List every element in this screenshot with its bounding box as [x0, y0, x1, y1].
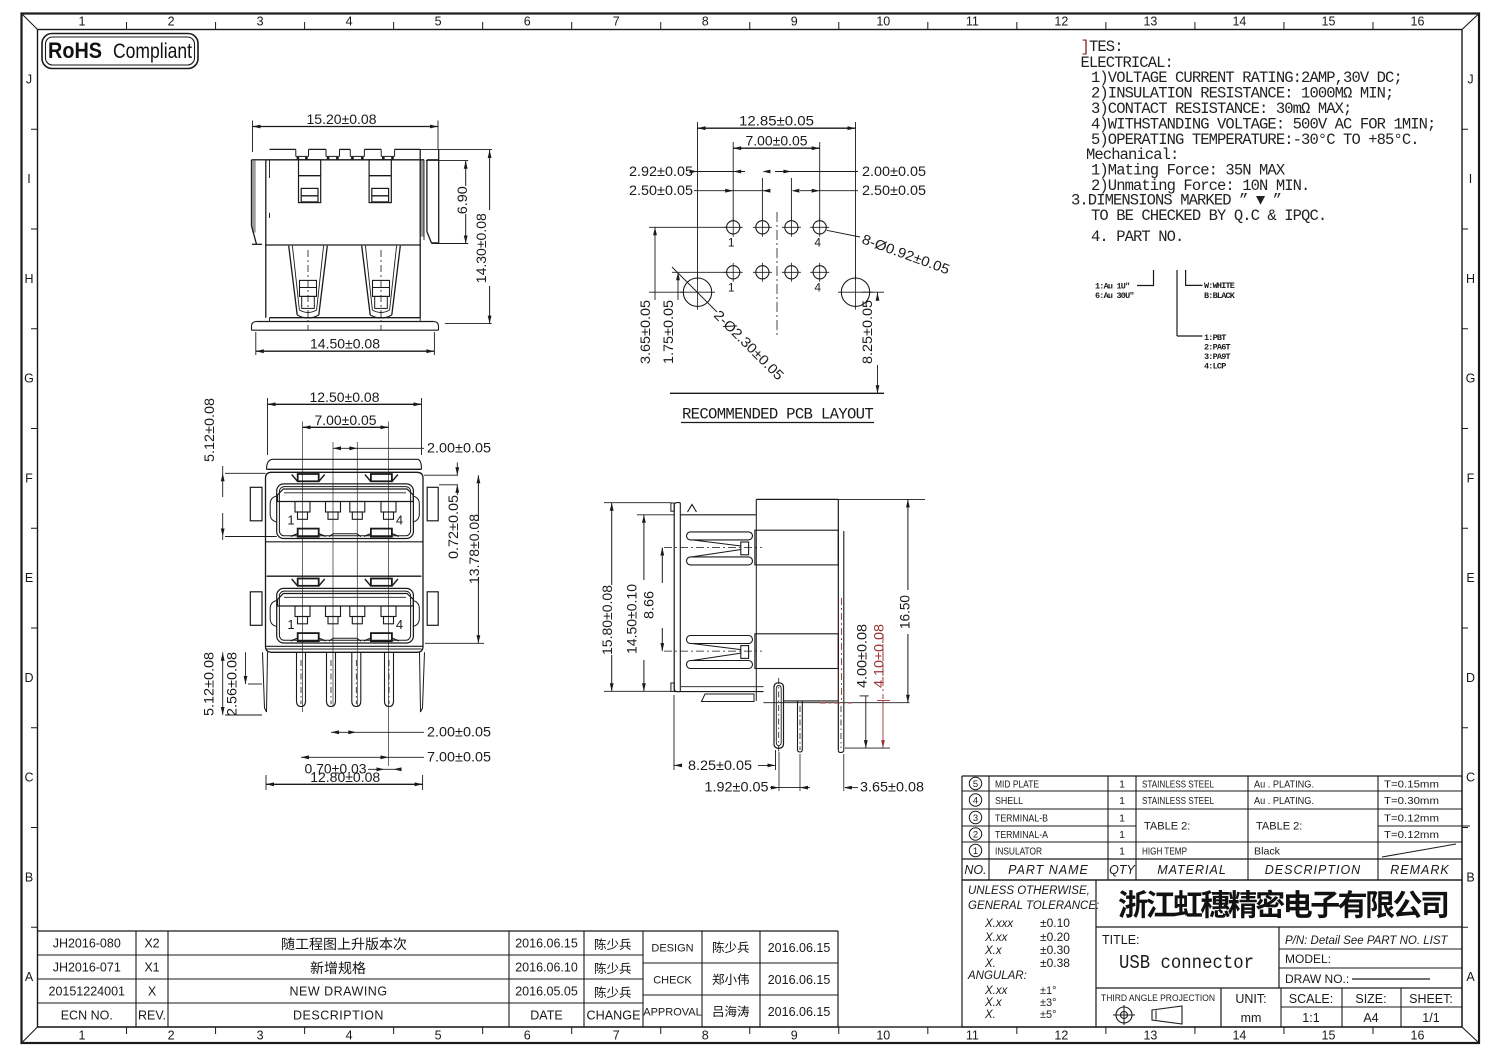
svg-text:SHELL: SHELL [995, 795, 1023, 807]
svg-text:1: 1 [79, 1029, 86, 1043]
svg-text:5: 5 [973, 779, 978, 790]
svg-text:8.25±0.05: 8.25±0.05 [688, 757, 752, 773]
svg-text:JH2016-080: JH2016-080 [53, 937, 121, 951]
svg-text:C: C [1466, 771, 1475, 785]
svg-text:12.80±0.08: 12.80±0.08 [310, 769, 380, 785]
svg-text:4.10±0.08: 4.10±0.08 [871, 624, 887, 688]
svg-text:NO.: NO. [964, 863, 986, 877]
svg-text:T=0.12mm: T=0.12mm [1384, 813, 1439, 825]
svg-text:W:WHITE: W:WHITE [1204, 281, 1235, 291]
svg-text:X: X [148, 985, 157, 999]
svg-text:±5°: ±5° [1040, 1009, 1057, 1021]
svg-text:2: 2 [973, 830, 978, 841]
svg-text:ECN NO.: ECN NO. [61, 1009, 113, 1023]
svg-text:MID PLATE: MID PLATE [995, 779, 1039, 791]
svg-text:12.85±0.05: 12.85±0.05 [739, 113, 814, 129]
svg-text:4.00±0.08: 4.00±0.08 [854, 624, 870, 688]
svg-text:X.: X. [984, 1009, 996, 1021]
svg-text:14.50±0.10: 14.50±0.10 [624, 584, 640, 654]
svg-text:20151224001: 20151224001 [49, 985, 126, 999]
svg-text:7: 7 [613, 15, 620, 29]
svg-text:9: 9 [791, 15, 798, 29]
svg-text:12: 12 [1054, 15, 1068, 29]
svg-text:3: 3 [973, 813, 978, 824]
svg-text:16: 16 [1411, 1029, 1425, 1043]
svg-text:3.65±0.05: 3.65±0.05 [637, 300, 653, 364]
svg-text:8: 8 [702, 1029, 709, 1043]
svg-text:5.12±0.08: 5.12±0.08 [201, 652, 217, 716]
svg-text:3: 3 [257, 15, 264, 29]
svg-text:13: 13 [1143, 15, 1157, 29]
svg-text:4: 4 [346, 1029, 353, 1043]
svg-text:8: 8 [702, 15, 709, 29]
svg-text:3:PA9T: 3:PA9T [1204, 352, 1231, 362]
svg-text:4: 4 [396, 617, 403, 632]
svg-text:10: 10 [876, 1029, 890, 1043]
svg-text:4: 4 [973, 796, 978, 807]
svg-text:2.50±0.05: 2.50±0.05 [629, 182, 693, 198]
svg-text:SHEET:: SHEET: [1409, 992, 1453, 1006]
svg-text:T=0.12mm: T=0.12mm [1384, 829, 1439, 841]
svg-text:2:PA6T: 2:PA6T [1204, 343, 1231, 353]
svg-text:3: 3 [257, 1029, 264, 1043]
svg-text:±0.20: ±0.20 [1040, 930, 1070, 944]
svg-text:G: G [1466, 372, 1476, 386]
svg-text:TITLE:: TITLE: [1102, 933, 1140, 947]
svg-text:14: 14 [1232, 15, 1246, 29]
svg-text:2.92±0.05: 2.92±0.05 [629, 163, 693, 179]
svg-text:QTY: QTY [1109, 863, 1136, 877]
svg-text:DATE: DATE [530, 1009, 562, 1023]
svg-text:9: 9 [791, 1029, 798, 1043]
svg-text:I: I [27, 172, 30, 186]
svg-text:TERMINAL-A: TERMINAL-A [995, 829, 1048, 841]
svg-text:UNIT:: UNIT: [1235, 992, 1266, 1006]
svg-text:TABLE 2:: TABLE 2: [1144, 821, 1190, 833]
svg-text:4:LCP: 4:LCP [1204, 362, 1226, 372]
svg-text:Au . PLATING.: Au . PLATING. [1254, 795, 1314, 807]
svg-text:H: H [1466, 272, 1475, 286]
svg-text:4: 4 [814, 235, 821, 249]
svg-text:STAINLESS STEEL: STAINLESS STEEL [1142, 795, 1214, 807]
svg-text:PART NAME: PART NAME [1008, 863, 1089, 877]
svg-text:1:1: 1:1 [1302, 1011, 1319, 1025]
svg-text:T=0.30mm: T=0.30mm [1384, 795, 1439, 807]
svg-text:A4: A4 [1363, 1011, 1378, 1025]
svg-text:TERMINAL-B: TERMINAL-B [995, 813, 1048, 825]
svg-text:D: D [24, 671, 33, 685]
svg-text:5.12±0.08: 5.12±0.08 [201, 398, 217, 462]
svg-text:DESCRIPTION: DESCRIPTION [293, 1009, 384, 1023]
svg-text:F: F [1467, 471, 1475, 485]
svg-text:1: 1 [1119, 795, 1125, 807]
svg-text:1:PBT: 1:PBT [1204, 333, 1226, 343]
svg-text:4: 4 [396, 513, 403, 528]
svg-text:4: 4 [814, 280, 821, 294]
svg-text:DESCRIPTION: DESCRIPTION [1265, 863, 1361, 877]
svg-text:6: 6 [524, 15, 531, 29]
svg-text:X1: X1 [144, 961, 159, 975]
svg-text:J: J [1467, 72, 1473, 86]
svg-text:2.00±0.05: 2.00±0.05 [862, 163, 926, 179]
svg-text:P/N: Detail See PART NO. LIST: P/N: Detail See PART NO. LIST [1285, 935, 1449, 947]
svg-text:3.65±0.08: 3.65±0.08 [860, 779, 924, 795]
svg-text:14.50±0.08: 14.50±0.08 [310, 336, 380, 352]
svg-text:2016.06.15: 2016.06.15 [515, 937, 578, 951]
svg-text:1: 1 [1119, 813, 1125, 825]
svg-text:16: 16 [1411, 15, 1425, 29]
svg-text:1: 1 [1119, 829, 1125, 841]
svg-text:X.x: X.x [984, 945, 1003, 957]
svg-text:2016.06.15: 2016.06.15 [768, 1005, 831, 1019]
svg-text:14: 14 [1232, 1029, 1246, 1043]
svg-text:16.50: 16.50 [897, 595, 913, 629]
svg-text:1: 1 [287, 617, 294, 632]
svg-text:±1°: ±1° [1040, 985, 1057, 997]
svg-text:2.00±0.05: 2.00±0.05 [427, 724, 491, 740]
svg-text:B: B [25, 870, 33, 884]
svg-text:2: 2 [168, 1029, 175, 1043]
svg-text:1: 1 [79, 15, 86, 29]
svg-text:UNLESS OTHERWISE,: UNLESS OTHERWISE, [968, 885, 1090, 897]
svg-text:4. PART NO.: 4. PART NO. [1091, 228, 1183, 246]
svg-text:mm: mm [1241, 1011, 1262, 1025]
svg-text:REV.: REV. [138, 1009, 166, 1023]
svg-text:CHECK: CHECK [653, 975, 692, 987]
svg-text:GENERAL TOLERANCE:: GENERAL TOLERANCE: [968, 900, 1099, 912]
svg-text:5: 5 [435, 15, 442, 29]
svg-text:]: ] [1081, 38, 1089, 56]
svg-text:2016.05.05: 2016.05.05 [515, 985, 578, 999]
svg-text:INSULATOR: INSULATOR [995, 846, 1042, 858]
svg-text:5: 5 [435, 1029, 442, 1043]
svg-text:Compliant: Compliant [113, 40, 192, 63]
svg-text:X.xx: X.xx [984, 932, 1009, 944]
svg-text:E: E [25, 571, 33, 585]
svg-text:TES:: TES: [1089, 38, 1123, 56]
svg-text:RoHS: RoHS [48, 38, 102, 63]
svg-text:D: D [1466, 671, 1475, 685]
svg-text:2.50±0.05: 2.50±0.05 [862, 182, 926, 198]
svg-text:1: 1 [1119, 846, 1125, 858]
svg-text:USB connector: USB connector [1119, 952, 1254, 974]
svg-text:12.50±0.08: 12.50±0.08 [310, 389, 380, 405]
svg-text:10: 10 [876, 15, 890, 29]
svg-text:12: 12 [1054, 1029, 1068, 1043]
svg-text:B: B [1466, 870, 1474, 884]
svg-text:X.xxx: X.xxx [984, 918, 1014, 930]
svg-text:APPROVAL: APPROVAL [643, 1007, 702, 1019]
svg-text:Black: Black [1254, 846, 1281, 858]
svg-text:14.30±0.08: 14.30±0.08 [473, 213, 489, 283]
svg-text:X.: X. [984, 958, 996, 970]
svg-text:8.66: 8.66 [641, 591, 657, 619]
svg-text:NEW DRAWING: NEW DRAWING [289, 985, 387, 999]
svg-text:1:Au 1U″: 1:Au 1U″ [1095, 282, 1130, 292]
svg-text:X.xx: X.xx [984, 985, 1009, 997]
svg-text:±3°: ±3° [1040, 997, 1057, 1009]
svg-text:STAINLESS STEEL: STAINLESS STEEL [1142, 779, 1214, 791]
svg-text:13: 13 [1143, 1029, 1157, 1043]
svg-text:1: 1 [728, 280, 735, 294]
svg-text:1: 1 [1119, 779, 1125, 791]
svg-text:1/1: 1/1 [1422, 1011, 1439, 1025]
svg-text:DRAW NO.:: DRAW NO.: [1285, 972, 1349, 986]
svg-text:JH2016-071: JH2016-071 [53, 961, 121, 975]
svg-text:13.78±0.08: 13.78±0.08 [466, 514, 482, 584]
svg-text:15: 15 [1322, 1029, 1336, 1043]
svg-text:1: 1 [728, 235, 735, 249]
svg-text:2: 2 [168, 15, 175, 29]
svg-text:J: J [26, 72, 32, 86]
svg-text:X2: X2 [144, 937, 159, 951]
svg-text:Au . PLATING.: Au . PLATING. [1254, 779, 1314, 791]
svg-text:MATERIAL: MATERIAL [1157, 863, 1227, 877]
svg-text:SIZE:: SIZE: [1355, 992, 1386, 1006]
svg-text:T=0.15mm: T=0.15mm [1384, 779, 1439, 791]
svg-text:1.92±0.05: 1.92±0.05 [705, 779, 769, 795]
svg-text:11: 11 [966, 15, 979, 29]
svg-text:6: 6 [524, 1029, 531, 1043]
svg-text:7.00±0.05: 7.00±0.05 [427, 749, 491, 765]
svg-text:C: C [24, 771, 33, 785]
svg-text:4: 4 [346, 15, 353, 29]
svg-text:15.80±0.08: 15.80±0.08 [599, 585, 615, 655]
svg-text:8.25±0.05: 8.25±0.05 [859, 300, 875, 364]
svg-text:6:Au 30U″: 6:Au 30U″ [1095, 291, 1134, 301]
svg-text:MODEL:: MODEL: [1285, 952, 1331, 966]
svg-text:2016.06.10: 2016.06.10 [515, 961, 578, 975]
svg-text:G: G [24, 372, 34, 386]
svg-text:2016.06.15: 2016.06.15 [768, 941, 831, 955]
svg-text:2.56±0.08: 2.56±0.08 [224, 652, 240, 716]
svg-text:1.75±0.05: 1.75±0.05 [660, 300, 676, 364]
svg-text:7.00±0.05: 7.00±0.05 [315, 412, 377, 428]
svg-text:CHANGE: CHANGE [587, 1009, 641, 1023]
svg-text:DESIGN: DESIGN [651, 943, 693, 955]
svg-text:1: 1 [973, 846, 978, 857]
svg-text:A: A [25, 970, 34, 984]
svg-text:15.20±0.08: 15.20±0.08 [307, 111, 377, 127]
svg-text:TO BE CHECKED BY Q.C & IPQC.: TO BE CHECKED BY Q.C & IPQC. [1091, 207, 1326, 225]
svg-text:I: I [1469, 172, 1472, 186]
svg-text:0.72±0.05: 0.72±0.05 [445, 495, 461, 559]
svg-text:H: H [24, 272, 33, 286]
svg-text:E: E [1466, 571, 1474, 585]
svg-text:±0.38: ±0.38 [1040, 956, 1070, 970]
svg-text:RECOMMENDED PCB LAYOUT: RECOMMENDED PCB LAYOUT [682, 406, 873, 424]
svg-text:1: 1 [287, 513, 294, 528]
svg-text:11: 11 [966, 1029, 979, 1043]
svg-text:SCALE:: SCALE: [1289, 992, 1333, 1006]
svg-text:15: 15 [1322, 15, 1336, 29]
svg-text:F: F [25, 471, 33, 485]
svg-text:ANGULAR:: ANGULAR: [967, 970, 1027, 982]
svg-text:±0.10: ±0.10 [1040, 916, 1070, 930]
svg-text:2.00±0.05: 2.00±0.05 [427, 440, 491, 456]
svg-text:2016.06.15: 2016.06.15 [768, 973, 831, 987]
svg-text:TABLE 2:: TABLE 2: [1256, 821, 1302, 833]
svg-text:THIRD ANGLE PROJECTION: THIRD ANGLE PROJECTION [1101, 993, 1215, 1004]
svg-text:A: A [1466, 970, 1475, 984]
svg-text:B:BLACK: B:BLACK [1204, 291, 1236, 301]
svg-text:7: 7 [613, 1029, 620, 1043]
svg-text:7.00±0.05: 7.00±0.05 [746, 133, 808, 149]
svg-text:±0.30: ±0.30 [1040, 943, 1070, 957]
svg-text:HIGH TEMP: HIGH TEMP [1142, 846, 1187, 858]
svg-text:REMARK: REMARK [1390, 863, 1449, 877]
svg-text:X.x: X.x [984, 997, 1003, 1009]
svg-text:6.90: 6.90 [454, 186, 470, 214]
